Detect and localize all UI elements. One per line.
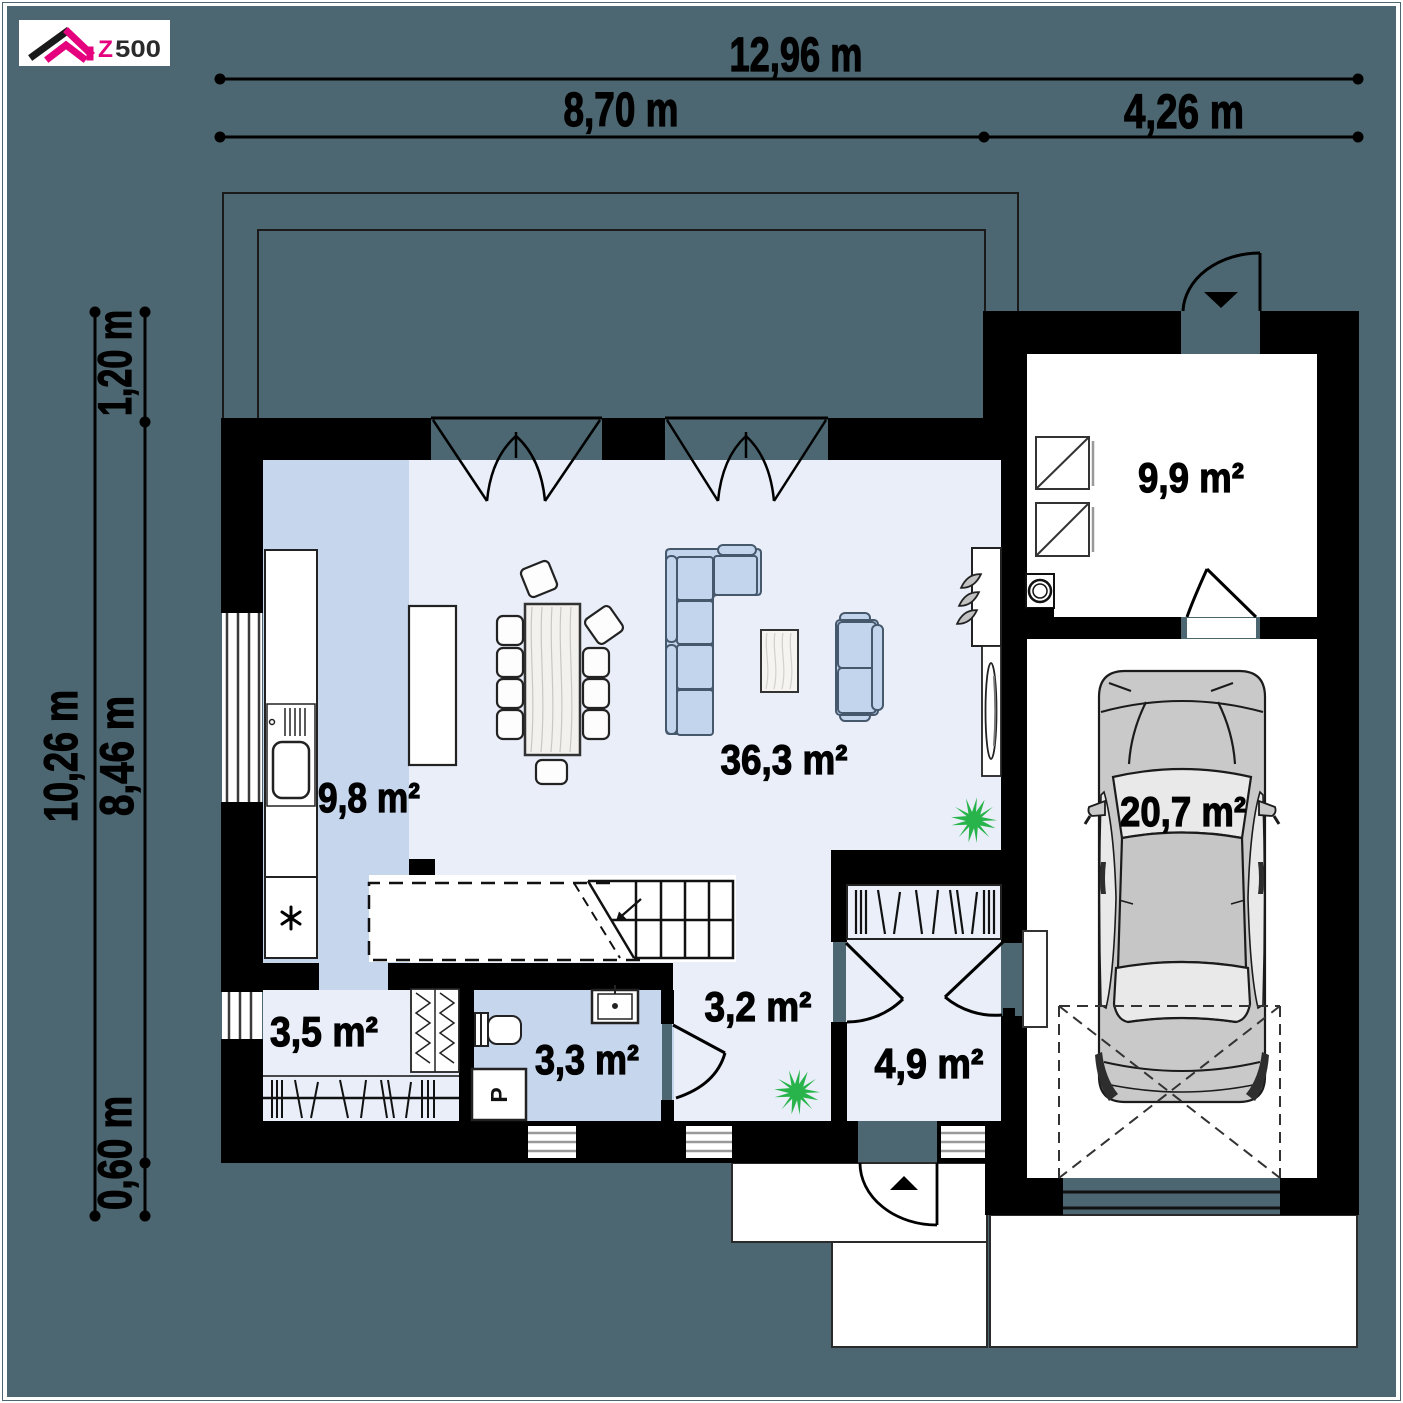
svg-text:0,60 m: 0,60 m xyxy=(88,1096,141,1210)
svg-text:P: P xyxy=(486,1087,512,1102)
svg-text:12,96 m: 12,96 m xyxy=(730,29,863,82)
svg-text:Z: Z xyxy=(98,36,113,63)
svg-text:8,46 m: 8,46 m xyxy=(90,696,143,816)
svg-text:9,8 m²: 9,8 m² xyxy=(318,774,420,821)
svg-text:4,26 m: 4,26 m xyxy=(1124,86,1244,139)
svg-text:4,9 m²: 4,9 m² xyxy=(875,1040,984,1087)
svg-text:3,5 m²: 3,5 m² xyxy=(270,1008,378,1055)
svg-text:10,26 m: 10,26 m xyxy=(34,690,87,822)
svg-text:9,9 m²: 9,9 m² xyxy=(1138,454,1244,501)
svg-text:3,2 m²: 3,2 m² xyxy=(705,983,812,1030)
svg-text:500: 500 xyxy=(115,36,161,63)
svg-text:8,70 m: 8,70 m xyxy=(564,84,679,137)
svg-text:20,7 m²: 20,7 m² xyxy=(1120,788,1246,835)
svg-text:36,3 m²: 36,3 m² xyxy=(721,736,848,783)
svg-text:1,20 m: 1,20 m xyxy=(88,310,141,416)
svg-text:3,3 m²: 3,3 m² xyxy=(535,1036,639,1083)
